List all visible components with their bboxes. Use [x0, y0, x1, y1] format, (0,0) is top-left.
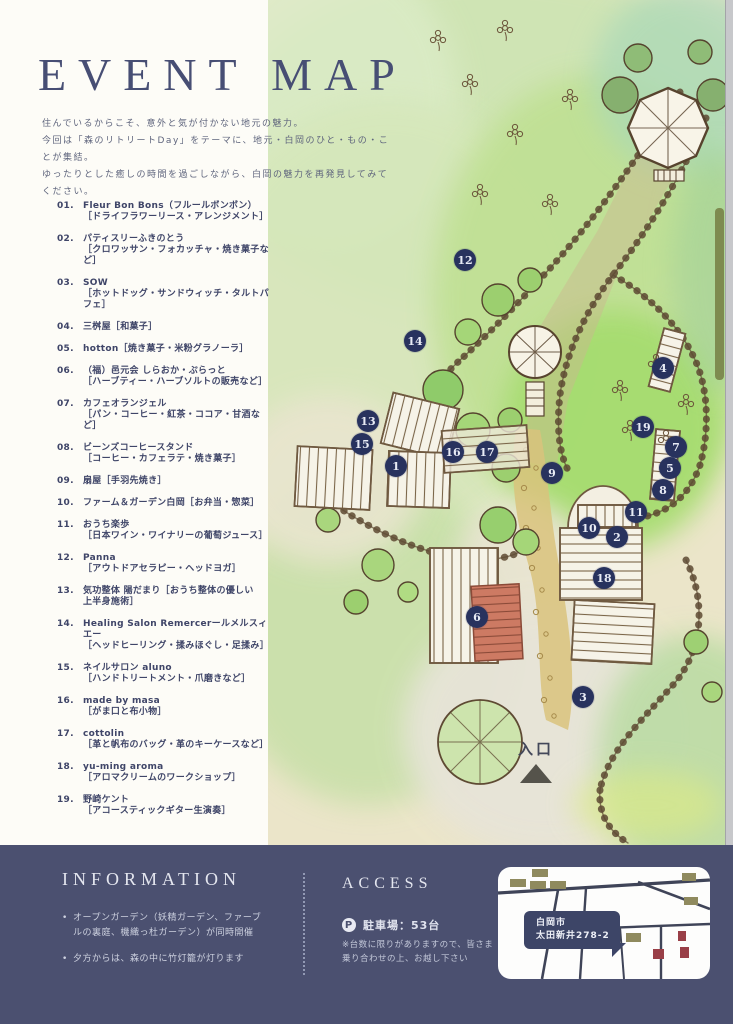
map-marker-10: 10	[578, 517, 600, 539]
vendor-text: cottolin［革と帆布のバッグ・革のキーケースなど］	[83, 729, 272, 751]
vendor-number: 07.	[57, 399, 83, 432]
vendor-item: 01.Fleur Bon Bons（フルールボンボン）［ドライフラワーリース・ア…	[57, 201, 272, 223]
vendor-text: SOW［ホットドッグ・サンドウィッチ・タルトパフェ］	[83, 278, 272, 311]
information-bullet: 夕方からは、森の中に竹灯籠が灯ります	[62, 952, 262, 967]
vendor-text: hotton［焼き菓子・米粉グラノーラ］	[83, 344, 272, 355]
vendor-item: 19.野崎ケント［アコースティックギター生演奏］	[57, 795, 272, 817]
dotted-divider	[303, 873, 305, 975]
vendor-number: 03.	[57, 278, 83, 311]
information-heading: INFORMATION	[62, 869, 241, 890]
vendor-number: 14.	[57, 619, 83, 652]
map-marker-1: 1	[385, 455, 407, 477]
information-bullets: オープンガーデン（妖精ガーデン、ファーブルの裏庭、機織っ杜ガーデン）が同時開催 …	[62, 911, 262, 978]
hedge-bar	[715, 208, 724, 380]
map-marker-7: 7	[665, 436, 687, 458]
parking-note: ※台数に限りがありますので、皆さま乗り合わせの上、お越し下さい	[342, 939, 494, 966]
vendor-number: 02.	[57, 234, 83, 267]
information-bullet: オープンガーデン（妖精ガーデン、ファーブルの裏庭、機織っ杜ガーデン）が同時開催	[62, 911, 262, 941]
vendor-item: 12.Panna［アウトドアセラピー・ヘッドヨガ］	[57, 553, 272, 575]
vendor-number: 05.	[57, 344, 83, 355]
address-line: 白岡市	[536, 917, 620, 930]
vendor-number: 19.	[57, 795, 83, 817]
intro-line: 今回は「森のリトリートDay」をテーマに、地元・白岡のひと・もの・ことが集結。	[42, 133, 392, 167]
page-edge-strip	[725, 0, 733, 845]
map-marker-16: 16	[442, 441, 464, 463]
vendor-text: 気功整体 陽だまり［おうち整体の優しい上半身施術］	[83, 586, 272, 608]
map-marker-12: 12	[454, 249, 476, 271]
vendor-text: ファーム＆ガーデン白岡［お弁当・惣菜］	[83, 498, 272, 509]
vendor-item: 17.cottolin［革と帆布のバッグ・革のキーケースなど］	[57, 729, 272, 751]
vendor-number: 16.	[57, 696, 83, 718]
vendor-text: Fleur Bon Bons（フルールボンボン）［ドライフラワーリース・アレンジ…	[83, 201, 272, 223]
vendor-number: 08.	[57, 443, 83, 465]
vendor-text: おうち楽歩［日本ワイン・ワイナリーの葡萄ジュース］	[83, 520, 272, 542]
vendor-item: 03.SOW［ホットドッグ・サンドウィッチ・タルトパフェ］	[57, 278, 272, 311]
vendor-number: 09.	[57, 476, 83, 487]
access-heading: ACCESS	[342, 875, 432, 893]
vendor-text: 野崎ケント［アコースティックギター生演奏］	[83, 795, 272, 817]
map-marker-14: 14	[404, 330, 426, 352]
intro-line: 住んでいるからこそ、意外と気が付かない地元の魅力。	[42, 116, 392, 133]
map-marker-11: 11	[625, 501, 647, 523]
vendor-text: カフェオランジェル［パン・コーヒー・紅茶・ココア・甘酒など］	[83, 399, 272, 432]
vendor-number: 17.	[57, 729, 83, 751]
vendor-item: 04.三桝屋［和菓子］	[57, 322, 272, 333]
vendor-item: 16.made by masa［がま口と布小物］	[57, 696, 272, 718]
vendor-item: 18.yu-ming aroma［アロマクリームのワークショップ］	[57, 762, 272, 784]
vendor-item: 14.Healing Salon Remercerールメルスィエー［ヘッドヒーリ…	[57, 619, 272, 652]
map-marker-6: 6	[466, 606, 488, 628]
event-map-poster: 入口 12345678910111213141516171819 EVENT M…	[0, 0, 733, 1024]
map-marker-3: 3	[572, 686, 594, 708]
map-marker-17: 17	[476, 441, 498, 463]
address-bubble: 白岡市 太田新井278-2	[524, 911, 620, 949]
map-marker-19: 19	[632, 416, 654, 438]
parking-info: P 駐車場：53台	[342, 917, 440, 933]
entrance-label: 入口	[518, 738, 554, 759]
vendor-item: 15.ネイルサロン aluno［ハンドトリートメント・爪磨きなど］	[57, 663, 272, 685]
vendor-item: 05.hotton［焼き菓子・米粉グラノーラ］	[57, 344, 272, 355]
intro-line: ゆったりとした癒しの時間を過ごしながら、白岡の魅力を再発見してみてください。	[42, 167, 392, 201]
vendor-number: 13.	[57, 586, 83, 608]
vendor-number: 15.	[57, 663, 83, 685]
vendor-number: 06.	[57, 366, 83, 388]
map-marker-18: 18	[593, 567, 615, 589]
vendor-legend-list: 01.Fleur Bon Bons（フルールボンボン）［ドライフラワーリース・ア…	[57, 201, 272, 828]
vendor-item: 06.（福）邑元会 しらおか・ぷらっと［ハーブティー・ハーブソルトの販売など］	[57, 366, 272, 388]
vendor-text: made by masa［がま口と布小物］	[83, 696, 272, 718]
map-marker-8: 8	[652, 479, 674, 501]
vendor-number: 12.	[57, 553, 83, 575]
vendor-text: ネイルサロン aluno［ハンドトリートメント・爪磨きなど］	[83, 663, 272, 685]
vendor-number: 11.	[57, 520, 83, 542]
map-marker-13: 13	[357, 410, 379, 432]
map-marker-9: 9	[541, 462, 563, 484]
parking-label: 駐車場：53台	[363, 917, 440, 933]
vendor-text: yu-ming aroma［アロマクリームのワークショップ］	[83, 762, 272, 784]
map-marker-2: 2	[606, 526, 628, 548]
page-title: EVENT MAP	[38, 48, 407, 101]
vendor-number: 18.	[57, 762, 83, 784]
vendor-text: 三桝屋［和菓子］	[83, 322, 272, 333]
vendor-item: 08.ビーンズコーヒースタンド［コーヒー・カフェラテ・焼き菓子］	[57, 443, 272, 465]
vendor-item: 11.おうち楽歩［日本ワイン・ワイナリーの葡萄ジュース］	[57, 520, 272, 542]
vendor-text: Panna［アウトドアセラピー・ヘッドヨガ］	[83, 553, 272, 575]
vendor-number: 04.	[57, 322, 83, 333]
footer: INFORMATION オープンガーデン（妖精ガーデン、ファーブルの裏庭、機織っ…	[0, 845, 733, 1024]
vendor-text: Healing Salon Remercerールメルスィエー［ヘッドヒーリング・…	[83, 619, 272, 652]
access-map-card: 白岡市 太田新井278-2	[498, 867, 710, 979]
address-line: 太田新井278-2	[536, 930, 620, 943]
vendor-item: 09.扇屋［手羽先焼き］	[57, 476, 272, 487]
parking-icon: P	[342, 918, 356, 932]
vendor-text: ビーンズコーヒースタンド［コーヒー・カフェラテ・焼き菓子］	[83, 443, 272, 465]
intro-text: 住んでいるからこそ、意外と気が付かない地元の魅力。 今回は「森のリトリートDay…	[42, 116, 392, 201]
vendor-item: 02.パティスリーふきのとう［クロワッサン・フォカッチャ・焼き菓子など］	[57, 234, 272, 267]
vendor-item: 07.カフェオランジェル［パン・コーヒー・紅茶・ココア・甘酒など］	[57, 399, 272, 432]
vendor-number: 10.	[57, 498, 83, 509]
vendor-item: 10.ファーム＆ガーデン白岡［お弁当・惣菜］	[57, 498, 272, 509]
map-marker-5: 5	[659, 457, 681, 479]
vendor-text: パティスリーふきのとう［クロワッサン・フォカッチャ・焼き菓子など］	[83, 234, 272, 267]
vendor-item: 13.気功整体 陽だまり［おうち整体の優しい上半身施術］	[57, 586, 272, 608]
map-marker-15: 15	[351, 433, 373, 455]
vendor-text: （福）邑元会 しらおか・ぷらっと［ハーブティー・ハーブソルトの販売など］	[83, 366, 272, 388]
vendor-text: 扇屋［手羽先焼き］	[83, 476, 272, 487]
vendor-number: 01.	[57, 201, 83, 223]
map-marker-4: 4	[652, 357, 674, 379]
large-tree	[438, 700, 522, 784]
